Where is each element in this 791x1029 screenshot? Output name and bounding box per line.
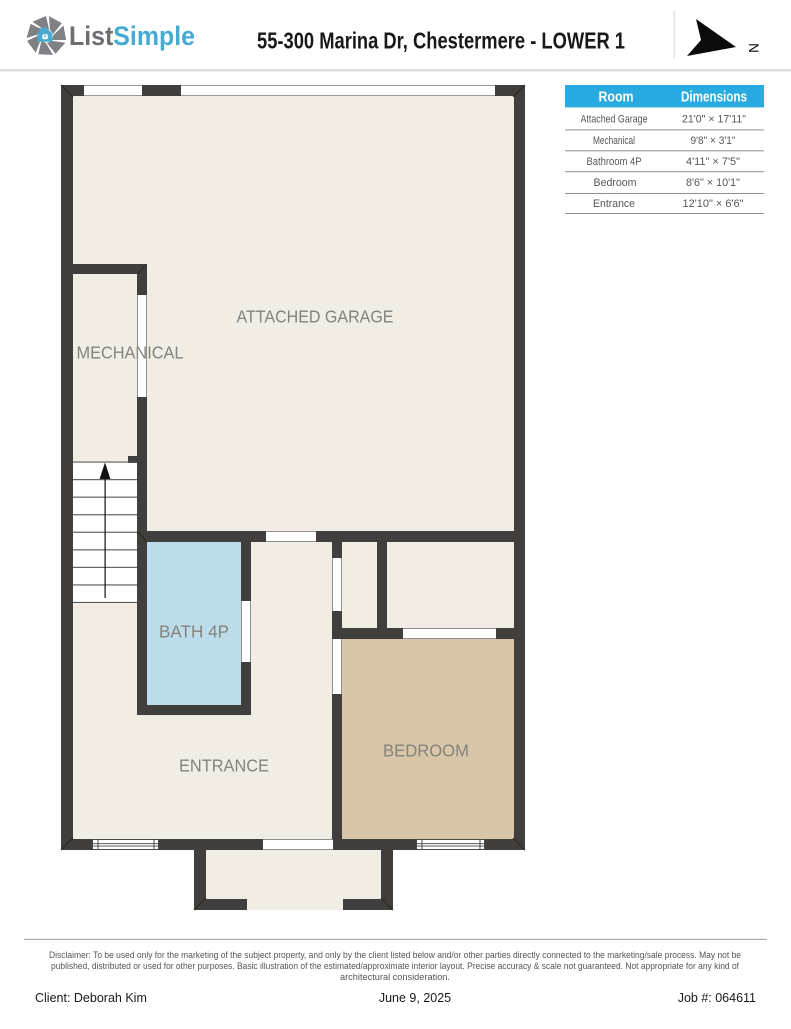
svg-text:Room: Room xyxy=(599,90,634,106)
svg-text:architectural consideration.: architectural consideration. xyxy=(340,972,450,982)
svg-text:Bedroom: Bedroom xyxy=(594,177,637,189)
svg-text:Disclaimer: To be used only fo: Disclaimer: To be used only for the mark… xyxy=(49,950,741,960)
svg-text:12'10" × 6'6": 12'10" × 6'6" xyxy=(683,198,744,210)
svg-text:Client: Deborah Kim: Client: Deborah Kim xyxy=(35,991,147,1005)
svg-text:Entrance: Entrance xyxy=(593,198,635,210)
svg-text:21'0" × 17'11": 21'0" × 17'11" xyxy=(682,114,746,126)
svg-text:June 9, 2025: June 9, 2025 xyxy=(379,991,451,1005)
svg-text:4'11" × 7'5": 4'11" × 7'5" xyxy=(686,156,740,168)
svg-text:BEDROOM: BEDROOM xyxy=(383,741,469,761)
svg-text:9'8" × 3'1": 9'8" × 3'1" xyxy=(691,135,736,147)
svg-text:8'6" × 10'1": 8'6" × 10'1" xyxy=(686,177,740,189)
svg-text:Mechanical: Mechanical xyxy=(593,135,635,147)
svg-text:55-300 Marina Dr, Chestermere: 55-300 Marina Dr, Chestermere - LOWER 1 xyxy=(257,28,625,54)
svg-text:ATTACHED GARAGE: ATTACHED GARAGE xyxy=(237,307,394,327)
svg-text:Attached Garage: Attached Garage xyxy=(581,114,648,126)
svg-text:published, distributed or used: published, distributed or used for other… xyxy=(51,961,740,971)
svg-text:MECHANICAL: MECHANICAL xyxy=(77,343,184,363)
svg-text:ENTRANCE: ENTRANCE xyxy=(179,756,269,776)
svg-text:Bathroom 4P: Bathroom 4P xyxy=(587,156,642,168)
svg-text:BATH 4P: BATH 4P xyxy=(159,622,229,642)
svg-text:N: N xyxy=(746,43,761,53)
svg-text:Dimensions: Dimensions xyxy=(681,90,747,106)
svg-text:ListSimple: ListSimple xyxy=(69,21,195,51)
svg-text:Job #: 064611: Job #: 064611 xyxy=(678,991,756,1005)
